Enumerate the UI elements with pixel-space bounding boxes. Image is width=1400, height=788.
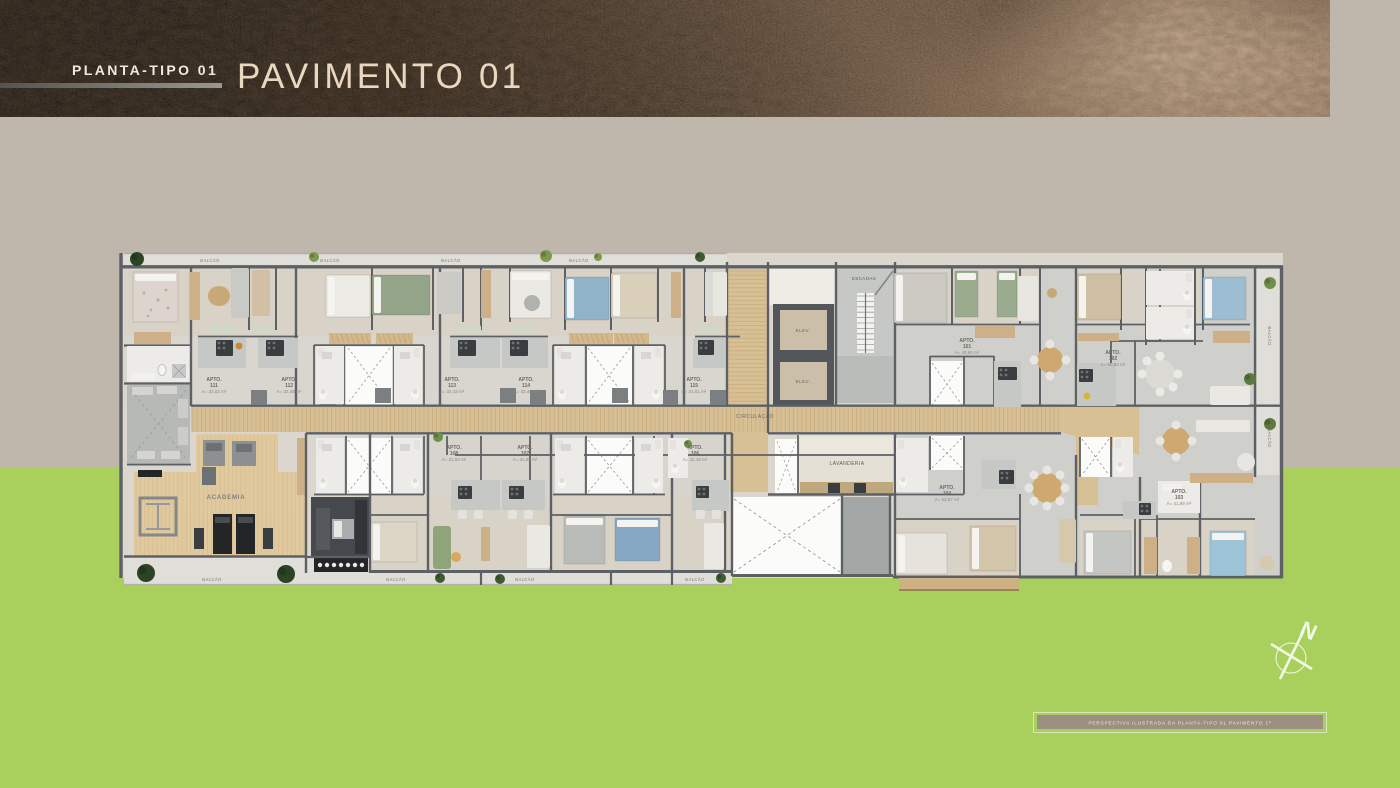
svg-text:ESCADAS: ESCADAS [852,276,876,281]
svg-text:BALCÃO: BALCÃO [515,577,535,582]
svg-text:BALCÃO: BALCÃO [202,577,222,582]
svg-text:PERSPECTIVA ILUSTRADA DA PLANT: PERSPECTIVA ILUSTRADA DA PLANTA-TIPO 01 … [1088,721,1271,726]
svg-text:BALCÃO: BALCÃO [441,258,461,263]
svg-text:ELEV.: ELEV. [796,328,811,333]
svg-text:A= 31,93 m²: A= 31,93 m² [442,457,467,462]
svg-text:A= 32,49 m²: A= 32,49 m² [514,389,539,394]
svg-text:A= 41,99 m²: A= 41,99 m² [1167,501,1192,506]
svg-text:A= 32,43 m²: A= 32,43 m² [440,389,465,394]
svg-text:ELEV.: ELEV. [796,379,811,384]
svg-text:A= 32,19 m²: A= 32,19 m² [683,457,708,462]
svg-text:LAVANDERIA: LAVANDERIA [830,461,865,467]
svg-text:BALCÃO: BALCÃO [1267,326,1272,346]
svg-text:A= 52,57 m²: A= 52,57 m² [935,497,960,502]
svg-text:A= 31,01 m²: A= 31,01 m² [682,389,707,394]
svg-text:A= 50,93 m²: A= 50,93 m² [1101,362,1126,367]
svg-text:BALCÃO: BALCÃO [200,258,220,263]
svg-text:BALCÃO: BALCÃO [1267,428,1272,448]
svg-text:A= 40,65 m²: A= 40,65 m² [955,350,980,355]
svg-text:BALCÃO: BALCÃO [320,258,340,263]
svg-text:A= 32,48 m²: A= 32,48 m² [277,389,302,394]
svg-text:A= 33,02 m²: A= 33,02 m² [202,389,227,394]
svg-text:ACADEMIA: ACADEMIA [207,495,246,501]
svg-text:A= 31,85 m²: A= 31,85 m² [513,457,538,462]
svg-text:BALCÃO: BALCÃO [569,258,589,263]
svg-text:BALCÃO: BALCÃO [685,577,705,582]
svg-text:CIRCULAÇÃO: CIRCULAÇÃO [736,413,774,420]
svg-text:BALCÃO: BALCÃO [386,577,406,582]
